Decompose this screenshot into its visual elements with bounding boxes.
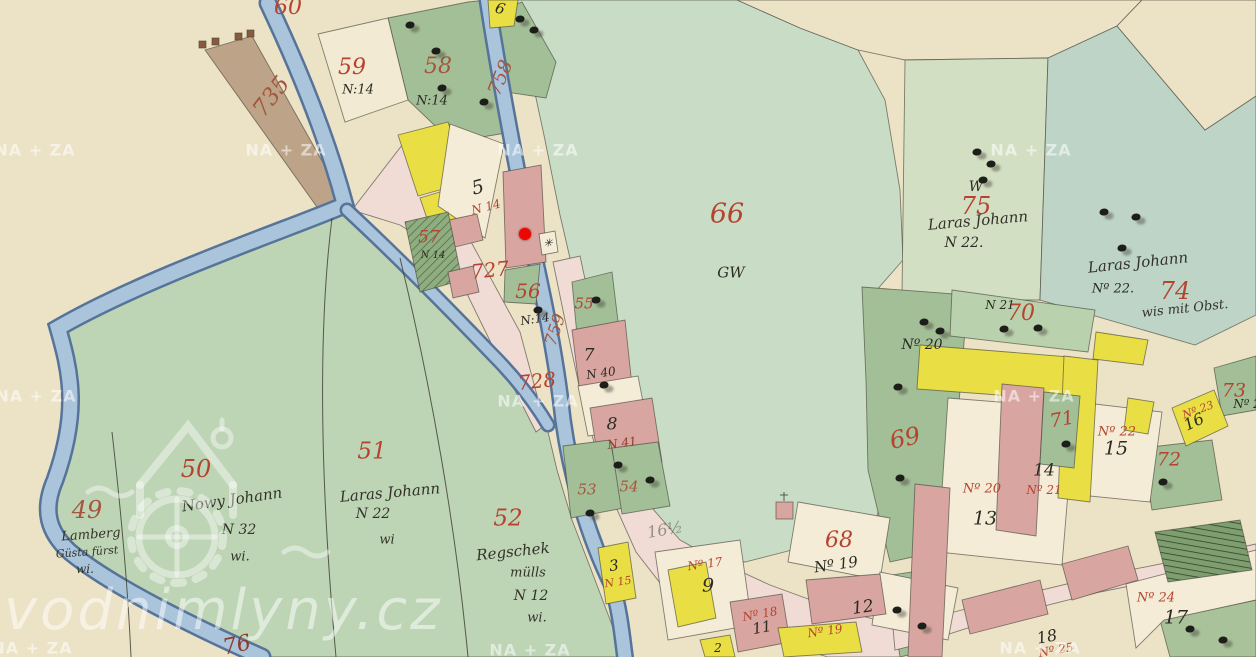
owner-annotation: N 12 bbox=[514, 589, 549, 603]
parcel-number-label: 60 bbox=[274, 0, 302, 19]
tree-symbol bbox=[894, 384, 903, 391]
map-canvas bbox=[0, 0, 1256, 657]
tree-symbol bbox=[1100, 209, 1109, 216]
tree-symbol bbox=[1000, 326, 1009, 333]
tree-symbol bbox=[987, 161, 996, 168]
parcel-number-label: 72 bbox=[1157, 451, 1181, 470]
parcel-number-label: 49 bbox=[72, 498, 103, 522]
parcel-number-label: 57 bbox=[418, 230, 440, 247]
owner-annotation: wi. bbox=[230, 551, 249, 564]
tree-symbol bbox=[1159, 479, 1168, 486]
house-number-label: Nº 22. bbox=[1092, 283, 1134, 296]
tree-symbol bbox=[432, 48, 441, 55]
parcel-number-label: 51 bbox=[357, 441, 386, 464]
tree-symbol bbox=[600, 382, 609, 389]
building-pink bbox=[962, 580, 1048, 634]
building-pink bbox=[1062, 546, 1138, 600]
parcel-number-label: 66 bbox=[710, 201, 744, 228]
tree-symbol bbox=[516, 16, 525, 23]
tree-symbol bbox=[896, 475, 905, 482]
tree-symbol bbox=[1118, 245, 1127, 252]
house-number-label: 14 bbox=[1033, 463, 1055, 480]
house-number-label: N 14 bbox=[421, 251, 446, 261]
archive-watermark: NA + ZA bbox=[497, 141, 578, 160]
owner-annotation: wi. bbox=[76, 563, 94, 575]
weir-block bbox=[247, 30, 254, 37]
tree-symbol bbox=[614, 462, 623, 469]
parcel-number-label: 52 bbox=[493, 508, 522, 531]
owner-annotation: Lamberg bbox=[61, 526, 121, 543]
owner-annotation: wi bbox=[379, 534, 394, 547]
tree-symbol bbox=[1132, 214, 1141, 221]
site-watermark: vodnimlyny.cz bbox=[4, 578, 443, 643]
house-number-label: 2 bbox=[714, 642, 722, 654]
tree-symbol bbox=[1219, 637, 1228, 644]
owner-annotation: N 22 bbox=[356, 507, 391, 521]
house-number-label: N 21 bbox=[985, 299, 1015, 311]
building-yellow bbox=[1093, 332, 1148, 365]
tree-symbol bbox=[530, 27, 539, 34]
weir-block bbox=[199, 41, 206, 48]
house-number-label: N:14 bbox=[342, 84, 374, 97]
parcel-number-label: 59 bbox=[338, 57, 366, 79]
house-number-label: 12 bbox=[851, 598, 875, 618]
chapel bbox=[776, 502, 793, 519]
parcel-number-label: Nº 21 bbox=[1026, 484, 1061, 496]
parcel-number-label: 53 bbox=[577, 483, 596, 498]
archive-watermark: NA + ZA bbox=[497, 392, 578, 411]
tree-symbol bbox=[534, 307, 543, 314]
parcel-number-label: 50 bbox=[181, 457, 212, 481]
house-number-label: N 22. bbox=[945, 236, 984, 250]
house-number-label: 17 bbox=[1164, 609, 1188, 628]
archive-watermark: NA + ZA bbox=[999, 639, 1080, 657]
parcel-number-label: 58 bbox=[424, 56, 452, 78]
tree-symbol bbox=[918, 623, 927, 630]
parcel-number-label: Nº 20 bbox=[963, 483, 1001, 496]
parcel-number-label: 54 bbox=[619, 480, 638, 495]
owner-annotation: wi. bbox=[527, 612, 546, 625]
tree-symbol bbox=[406, 22, 415, 29]
parcel-number-label: 56 bbox=[515, 281, 540, 301]
house-number-label: 15 bbox=[1104, 440, 1128, 459]
mill-building bbox=[503, 165, 546, 268]
tree-symbol bbox=[1062, 441, 1071, 448]
parcel-number-label: 68 bbox=[825, 530, 853, 552]
tree-symbol bbox=[1034, 325, 1043, 332]
tree-symbol bbox=[592, 297, 601, 304]
house-number-label: 9 bbox=[702, 577, 714, 596]
mill-wheel-symbol: ✳ bbox=[543, 238, 552, 249]
tree-symbol bbox=[646, 477, 655, 484]
tree-symbol bbox=[586, 510, 595, 517]
tree-symbol bbox=[438, 85, 447, 92]
house-number-label: N:14 bbox=[416, 95, 448, 108]
archive-watermark: NA + ZA bbox=[0, 387, 77, 406]
parcel-number-label: 728 bbox=[517, 369, 557, 393]
house-number-label: 7 bbox=[584, 348, 595, 365]
owner-annotation: N 32 bbox=[222, 523, 257, 537]
tree-symbol bbox=[936, 328, 945, 335]
parcel-number-label: 69 bbox=[888, 423, 923, 453]
parcel-number-label: Nº 24 bbox=[1137, 592, 1175, 605]
mill-marker[interactable] bbox=[519, 228, 531, 240]
house-number-label: Nº 2 bbox=[1233, 398, 1256, 410]
archive-watermark: NA + ZA bbox=[489, 641, 570, 657]
tree-symbol bbox=[979, 177, 988, 184]
weir-block bbox=[235, 33, 242, 40]
tree-symbol bbox=[893, 607, 902, 614]
house-number-label: Nº 20 bbox=[901, 338, 942, 352]
owner-annotation: mülls bbox=[510, 567, 546, 580]
map-viewport[interactable]: 6073559587586675747275657557597284950515… bbox=[0, 0, 1256, 657]
parcel-number-label: 727 bbox=[470, 258, 510, 282]
archive-watermark: NA + ZA bbox=[0, 141, 76, 160]
house-number-label: 3 bbox=[608, 558, 620, 574]
house-number-label: 13 bbox=[973, 510, 997, 529]
archive-watermark: NA + ZA bbox=[990, 141, 1071, 160]
tree-symbol bbox=[1186, 626, 1195, 633]
tree-symbol bbox=[920, 319, 929, 326]
tree-symbol bbox=[973, 149, 982, 156]
house-number-label: 11 bbox=[751, 619, 772, 637]
archive-watermark: NA + ZA bbox=[993, 387, 1074, 406]
archive-watermark: NA + ZA bbox=[245, 141, 326, 160]
tree-symbol bbox=[480, 99, 489, 106]
parcel-number-label: 74 bbox=[1160, 279, 1191, 303]
house-number-label: 8 bbox=[607, 417, 618, 434]
house-number-label: GW bbox=[717, 266, 744, 281]
weir-block bbox=[212, 38, 219, 45]
parcel-number-label: 71 bbox=[1048, 409, 1075, 432]
parcel-number-label: N 15 bbox=[604, 575, 632, 590]
